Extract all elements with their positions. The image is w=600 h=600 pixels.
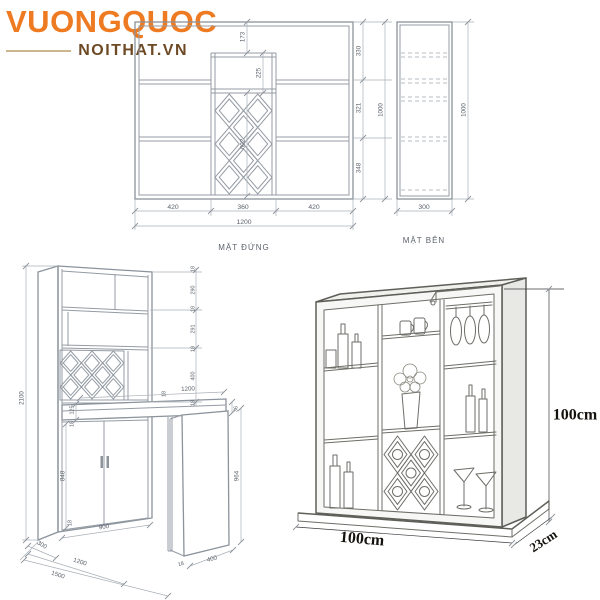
dim-leg-panel: 18 [177,561,184,568]
dim-chain-5: 400 [190,372,196,381]
technical-drawing: 173 225 602 330 321 348 1000 420 360 420… [0,0,600,600]
dim-width-3: 420 [308,204,320,211]
desk [62,399,229,556]
side-view-dim-lines [397,22,474,216]
dim-desk-back: 18 [161,391,167,397]
dim-chain-3: 291 [190,325,196,334]
page: VUONGQUOC NOITHAT.VN [0,0,600,600]
side-view-shelf-dashes [401,53,448,190]
dim-persp-width: 100cm [339,529,385,550]
dim-side-height: 1000 [461,103,468,117]
dim-side-depth: 300 [418,204,430,211]
dim-right-1: 330 [356,45,363,56]
dim-right-2: 321 [356,102,363,113]
front-elevation-drawing: 173 225 602 330 321 348 1000 420 360 420… [135,22,392,252]
dim-desk-gap: 125 [69,406,75,415]
iso-view-drawing: 2100 18 290 18 291 18 400 18 125 18 18 1… [19,266,241,596]
cabinet-doors [62,420,148,530]
dim-top-gap: 173 [240,31,247,42]
front-elevation-label: MẶT ĐỨNG [218,243,270,252]
door-handle-right [107,456,110,468]
dim-iso-depth: 300 [36,540,49,552]
dim-rack-height: 602 [240,138,247,149]
dim-right-3: 348 [356,162,363,173]
dim-width-1: 420 [167,204,179,211]
dim-leg-height: 964 [234,470,241,481]
dim-floor-total: 1500 [50,570,66,581]
dim-height-total: 1000 [378,103,385,117]
dim-width-2: 360 [237,204,249,211]
dim-width-total: 1200 [236,219,251,226]
dim-persp-depth: 23cm [527,526,560,555]
door-handle-left [101,456,104,468]
dim-iso-height: 2100 [19,391,26,405]
dim-top-box: 225 [256,67,263,78]
dim-floor-mid: 1200 [72,557,88,568]
cabinet-side-face [502,278,526,527]
dim-door-height: 848 [60,470,67,481]
side-view-drawing: 1000 300 MẶT BÊN [397,22,474,245]
iso-wine-rack-lattice [60,351,124,399]
dim-chain-1: 290 [190,286,196,295]
perspective-drawing: 100cm 100cm 23cm [296,278,598,555]
side-view-label: MẶT BÊN [403,236,445,245]
dim-leg-width: 400 [206,554,218,564]
dim-desk-length: 1200 [181,385,196,393]
dim-door-width: 900 [98,523,110,531]
dim-persp-height: 100cm [553,407,598,424]
